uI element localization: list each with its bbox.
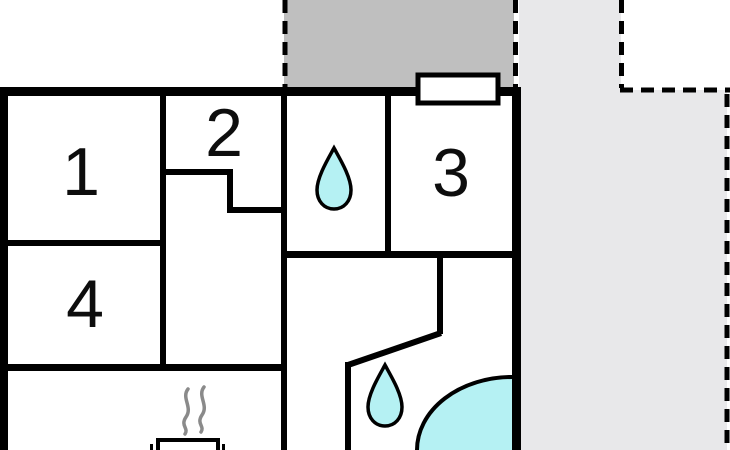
outer-wall-right bbox=[512, 87, 521, 450]
room-2-label: 2 bbox=[205, 95, 243, 171]
wall-room2-step-lower bbox=[227, 207, 287, 213]
floor-plan: 1 2 3 4 bbox=[0, 0, 730, 450]
wall-room2-step-vertical bbox=[227, 169, 233, 213]
wall-living-top bbox=[8, 364, 287, 371]
outer-wall-left bbox=[0, 87, 8, 450]
room-1-label: 1 bbox=[62, 134, 100, 210]
wall-bathroom2-upper bbox=[437, 251, 443, 334]
wall-bathroom-room3 bbox=[385, 96, 391, 258]
wall-bathroom2-diagonal bbox=[348, 333, 441, 365]
wall-room1-room4 bbox=[8, 240, 160, 246]
wood-stove-icon bbox=[158, 440, 218, 450]
water-drop-icon bbox=[368, 365, 402, 426]
wall-under-room3 bbox=[281, 251, 512, 258]
floor-plan-drawing: 1 2 3 4 bbox=[0, 0, 730, 450]
wall-room1-room2 bbox=[160, 96, 166, 371]
stove-right-tick bbox=[222, 444, 225, 450]
room-4-label: 4 bbox=[66, 266, 104, 342]
stove-left-tick bbox=[150, 444, 153, 450]
window-icon bbox=[418, 75, 498, 103]
steam-squiggle-icon bbox=[184, 389, 188, 434]
room-3-label: 3 bbox=[432, 135, 470, 211]
steam-squiggle-icon bbox=[200, 387, 204, 432]
wall-bathroom2-lower bbox=[345, 362, 351, 450]
water-drop-icon bbox=[317, 148, 351, 209]
wall-hall-bathroom bbox=[281, 96, 287, 450]
